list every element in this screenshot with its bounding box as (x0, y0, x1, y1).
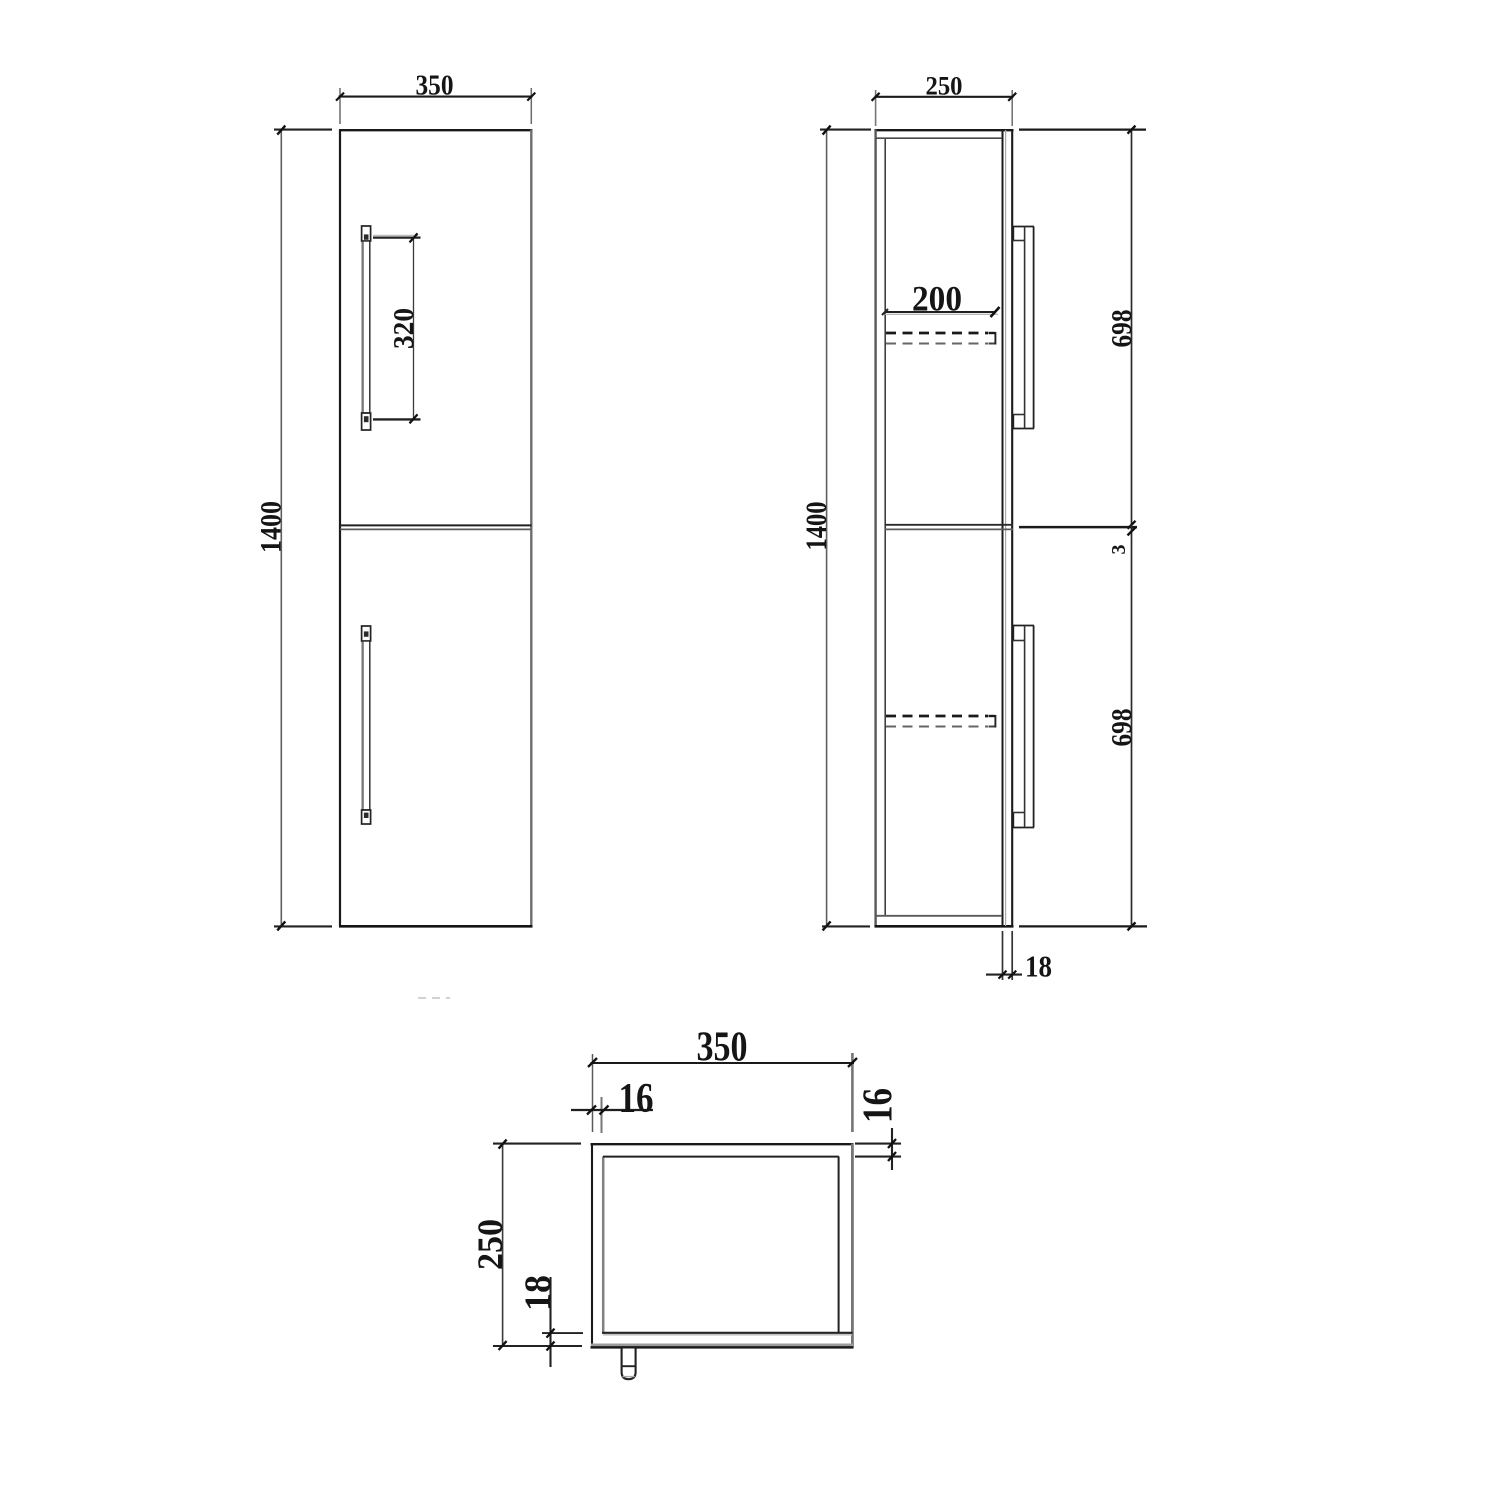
svg-text:16: 16 (856, 1088, 902, 1123)
svg-text:200: 200 (912, 279, 962, 319)
svg-text:350: 350 (416, 71, 454, 102)
svg-text:16: 16 (619, 1076, 654, 1122)
svg-text:18: 18 (518, 1275, 559, 1311)
svg-text:250: 250 (926, 72, 963, 101)
svg-text:320: 320 (388, 308, 420, 349)
svg-text:3: 3 (1108, 545, 1130, 555)
svg-text:1400: 1400 (800, 502, 833, 551)
svg-text:18: 18 (1025, 949, 1052, 984)
svg-text:1400: 1400 (255, 501, 288, 553)
svg-text:698: 698 (1107, 709, 1138, 747)
svg-text:698: 698 (1107, 310, 1138, 348)
svg-text:350: 350 (697, 1025, 748, 1071)
svg-text:250: 250 (470, 1219, 510, 1270)
